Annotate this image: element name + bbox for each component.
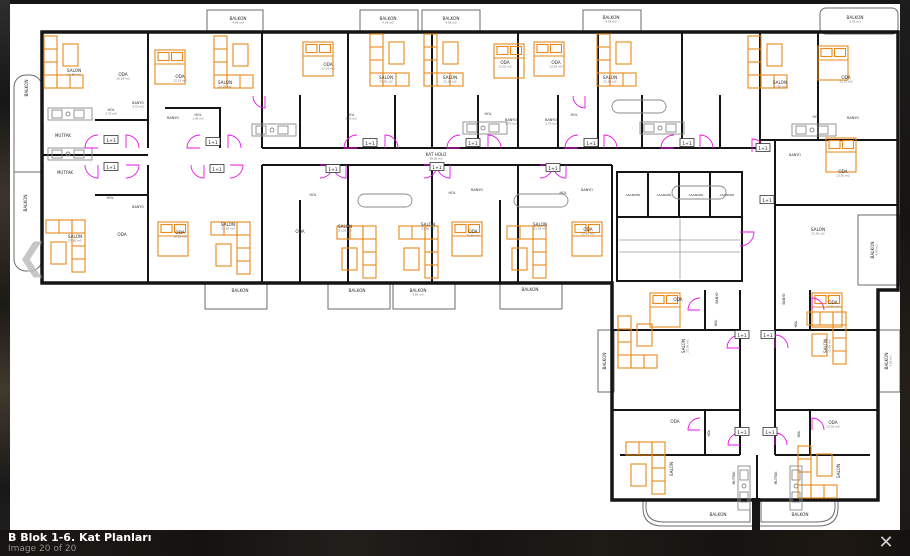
room-label: MUTFAK	[55, 133, 71, 138]
room-label: ASANSÖR	[720, 192, 735, 197]
unit-type-badge-label: 1+1	[328, 167, 338, 173]
room-label: BALKON	[791, 512, 808, 517]
floorplan-image: SALON27.85 m2ODA16.28 m2BANYO3.70 m2HOL2…	[0, 0, 910, 556]
room-label: SALON27.85 m2	[67, 68, 81, 77]
room-label: HOL	[707, 429, 711, 436]
unit-type-badge-label: 1+1	[365, 141, 375, 147]
room-label: SALON	[836, 464, 841, 478]
room-label: HOL	[797, 430, 801, 437]
room-label: BALKON	[602, 352, 607, 369]
room-label: BANYO	[782, 293, 786, 305]
room-label: SALON27.85 m2	[773, 80, 787, 89]
room-label: HOL	[484, 112, 491, 116]
room-label: BANYO3.70 m2	[132, 101, 144, 109]
unit-type-badge-label: 1+1	[682, 141, 692, 147]
room-label: SALON21.05 m2	[221, 222, 235, 231]
unit-type-badge-label: 1+1	[586, 141, 596, 147]
room-label: ODA	[117, 232, 126, 237]
room-label: BALKON	[348, 288, 365, 293]
next-image-sliver	[900, 0, 910, 556]
room-label: BALKON	[521, 287, 538, 292]
unit-type-badge-label: 1+1	[763, 333, 773, 339]
room-label: BANYO	[581, 188, 593, 192]
room-label: SALON	[669, 462, 674, 476]
image-caption-title: B Blok 1-6. Kat Planları	[8, 531, 151, 544]
room-label: BALKON	[231, 288, 248, 293]
room-label: HOL	[570, 113, 577, 117]
room-label: HOL	[812, 115, 819, 119]
room-label: SALON21.05 m2	[338, 224, 352, 233]
room-label: ASANSÖR	[657, 192, 672, 197]
room-label: HOL	[309, 193, 316, 197]
prev-image-button[interactable]: ❮	[16, 238, 48, 278]
room-label: MUTFAK	[57, 170, 73, 175]
room-label: SALON21.05 m2	[823, 339, 832, 353]
room-label: HOL	[106, 196, 113, 200]
room-label: SALON21.05 m2	[218, 80, 232, 89]
room-label: HOL	[794, 320, 798, 327]
unit-type-badge-label: 1+1	[432, 165, 442, 171]
room-label: BANYO3.70 m2	[505, 118, 517, 126]
unit-type-badge-label: 1+1	[106, 165, 116, 171]
room-label: BALKON	[23, 194, 28, 211]
room-label: ASANSÖR	[626, 192, 641, 197]
room-label: SALON21.05 m2	[533, 222, 547, 231]
room-label: ODA	[673, 297, 682, 302]
unit-type-badge-label: 1+1	[737, 430, 747, 436]
floorplan-svg: SALON27.85 m2ODA16.28 m2BANYO3.70 m2HOL2…	[0, 0, 910, 556]
unit-type-badge-label: 1+1	[106, 138, 116, 144]
unit-type-badge-label: 1+1	[762, 198, 772, 204]
room-label: SALON21.05 m2	[681, 339, 690, 353]
room-label: BANYO	[167, 116, 179, 120]
image-counter: Image 20 of 20	[8, 544, 151, 555]
unit-type-badge-label: 1+1	[208, 140, 218, 146]
room-label: BANYO	[789, 153, 801, 157]
unit-type-badge-label: 1+1	[737, 333, 747, 339]
room-label: SALON27.85 m2	[68, 234, 82, 243]
room-label: ODA	[670, 419, 679, 424]
close-icon: ✕	[878, 532, 893, 553]
room-label: HOL	[559, 191, 566, 195]
caption-text: B Blok 1-6. Kat Planları Image 20 of 20	[8, 531, 151, 555]
room-label: HOL	[714, 319, 718, 326]
room-label: SALON21.05 m2	[379, 75, 393, 84]
room-label: SALON21.05 m2	[443, 75, 457, 84]
caption-bar: B Blok 1-6. Kat Planları Image 20 of 20 …	[0, 530, 910, 556]
chevron-left-icon: ❮	[17, 237, 47, 278]
unit-type-badge-label: 1+1	[758, 146, 768, 152]
room-label: HOL	[448, 191, 455, 195]
room-label: BALKON	[24, 79, 29, 96]
room-label: MUTFAK	[774, 471, 778, 485]
room-label: MUTFAK	[732, 471, 736, 485]
room-label: BALKON	[709, 512, 726, 517]
room-label: BANYO	[471, 188, 483, 192]
room-label: ASANSÖR	[689, 192, 704, 197]
unit-type-badge-label: 1+1	[548, 166, 558, 172]
room-label: BANYO	[847, 116, 859, 120]
unit-type-badge-label: 1+1	[765, 430, 775, 436]
previous-image-sliver	[0, 0, 10, 556]
room-label: SALON21.05 m2	[603, 75, 617, 84]
room-label: ODA	[295, 229, 304, 234]
unit-type-badge-label: 1+1	[212, 167, 222, 173]
room-label: SALON21.05 m2	[811, 227, 825, 236]
close-button[interactable]: ✕	[874, 531, 898, 555]
room-label: BANYO3.70 m2	[545, 118, 557, 126]
room-label: SALON21.05 m2	[421, 222, 435, 231]
unit-type-badge-label: 1+1	[468, 141, 478, 147]
room-label: BANYO	[715, 292, 719, 304]
room-label: BANYO	[132, 205, 144, 209]
